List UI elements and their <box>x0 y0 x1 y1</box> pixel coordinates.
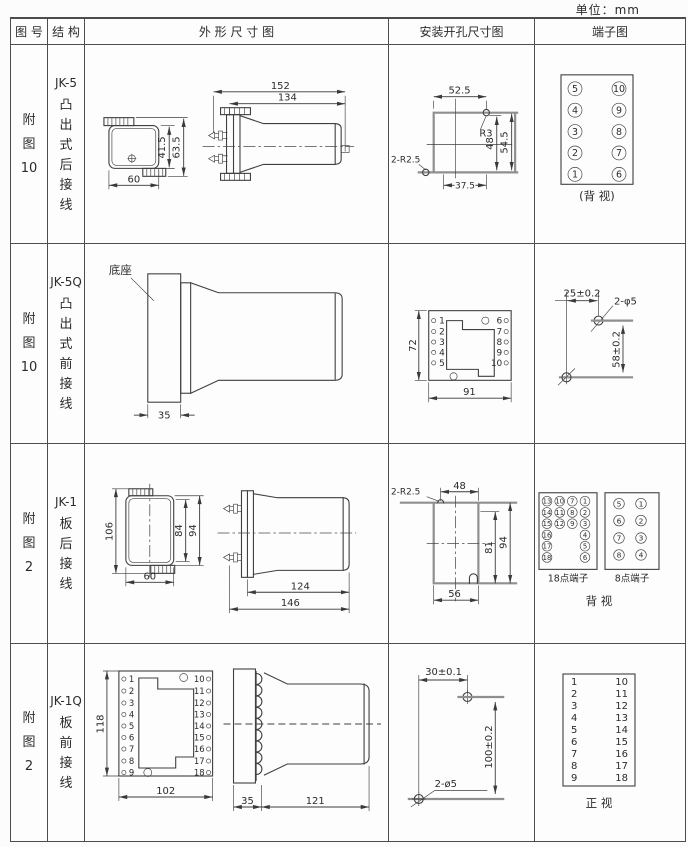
model-name: JK-1 <box>55 496 77 508</box>
dim-label: 56 <box>448 589 461 600</box>
pin-number: 16 <box>194 744 205 754</box>
pin-number: 7 <box>497 328 503 338</box>
dim-label: 146 <box>281 598 300 609</box>
jk5q-outline-drawing: 底座 35 <box>85 244 388 443</box>
figure-no-cell: 附 图 2 <box>11 644 48 841</box>
terminal-number: 10 <box>615 677 628 688</box>
pin-number: 10 <box>491 359 503 369</box>
terminal-number: 7 <box>570 498 574 506</box>
figure-no: 附 图 2 <box>22 712 35 773</box>
hole-spec-label: 2-ø5 <box>435 779 457 790</box>
pin-number: 12 <box>194 698 205 708</box>
screw-hole-icon <box>180 674 188 682</box>
terminal-circles-18 <box>542 496 590 562</box>
dim-label: 94 <box>188 524 199 537</box>
terminal-number: 11 <box>555 509 564 517</box>
terminal-number: 2 <box>583 509 587 517</box>
dim-label: 94 <box>499 536 510 549</box>
terminal-number: 5 <box>572 84 578 95</box>
view-caption: 正 视 <box>586 796 613 810</box>
header-terminal: 端子图 <box>535 19 685 45</box>
screw-hole-icon <box>450 373 457 380</box>
outline-cell: 106 84 94 60 124 <box>85 444 389 644</box>
terminal-box-caption: 18点端子 <box>548 572 589 584</box>
terminal-number: 6 <box>571 737 577 748</box>
jk1-outline-drawing: 106 84 94 60 124 <box>85 444 388 643</box>
terminal-number: 4 <box>572 105 578 116</box>
outline-cell: 41.5 63.5 60 15 <box>85 45 389 244</box>
pin-number: 1 <box>439 317 445 327</box>
dim-label: 134 <box>278 93 297 104</box>
terminal-number: 3 <box>572 127 578 138</box>
terminal-box-8 <box>605 493 659 570</box>
pin-number: 8 <box>129 756 134 766</box>
pin-number: 4 <box>439 348 445 358</box>
dim-label: 100±0.2 <box>484 725 495 768</box>
jk1-terminal-diagram: 13 14 15 16 17 18 10 11 12 7 8 9 1 2 3 4… <box>535 444 685 643</box>
structure-label: JK-1Q 板前 接线 <box>50 695 82 790</box>
structure-cell: JK-5 凸出 式后 接线 <box>48 45 85 244</box>
jk5q-side-view <box>148 274 342 402</box>
pin-number: 8 <box>497 338 503 348</box>
terminal-number: 9 <box>571 773 577 784</box>
pin-number: 9 <box>129 767 134 777</box>
terminal-number: 8 <box>616 127 622 138</box>
dimension-table: 图 号 结 构 外 形 尺 寸 图 安装开孔尺寸图 端子图 附 图 10 JK-… <box>10 17 686 842</box>
structure-cell: JK-1Q 板前 接线 <box>48 644 85 841</box>
terminal-number: 5 <box>583 543 587 551</box>
dim-label: 60 <box>128 174 141 185</box>
terminal-number: 3 <box>583 520 587 528</box>
dim-label: 84 <box>174 524 185 537</box>
dim-label: 58±0.2 <box>611 331 622 368</box>
mounting-cell: 72 91 1 2 3 4 5 6 7 8 9 10 <box>389 244 535 444</box>
figure-no-cell: 附 图 10 <box>11 244 48 444</box>
figure-no-cell: 附 图 10 <box>11 45 48 244</box>
corner-notch <box>469 574 477 583</box>
dim-label: 152 <box>271 81 290 92</box>
pin-number: 3 <box>439 338 445 348</box>
mounting-cell: 2-R2.5 48 81 94 56 <box>389 444 535 644</box>
terminal-stud-icon <box>224 553 242 562</box>
dim-label: 102 <box>156 786 175 797</box>
figure-no: 附 图 2 <box>22 513 35 574</box>
header-fig-no: 图 号 <box>11 19 48 45</box>
pin-number: 5 <box>129 721 134 731</box>
dim-label: 48 <box>485 137 496 150</box>
dim-label: 48 <box>453 481 466 492</box>
dim-label: 41.5 <box>157 136 168 158</box>
terminal-number: 7 <box>617 534 622 543</box>
jk1-front-view <box>126 484 175 580</box>
dim-label: 124 <box>291 581 310 592</box>
dim-label: 72 <box>408 339 419 352</box>
structure-label: JK-1 板后 接线 <box>55 496 77 591</box>
jk1q-side-view <box>224 669 381 783</box>
terminal-number: 9 <box>616 105 622 116</box>
terminal-number: 1 <box>583 498 587 506</box>
outline-cell: 1 2 3 4 5 6 7 8 9 10 11 12 13 14 15 16 1… <box>85 644 389 841</box>
pin-number: 2 <box>439 328 445 338</box>
model-name: JK-1Q <box>50 695 82 707</box>
figure-no: 附 图 10 <box>21 114 38 175</box>
pin-number: 17 <box>194 756 205 766</box>
base-label: 底座 <box>109 263 132 277</box>
dim-label: 30±0.1 <box>425 667 462 678</box>
pin-number: 10 <box>194 674 205 684</box>
terminal-number: 13 <box>543 498 552 506</box>
pin-number: 5 <box>439 359 445 369</box>
terminal-number: 18 <box>615 773 628 784</box>
terminal-number: 9 <box>570 520 574 528</box>
jk5-terminal-diagram: 5 4 3 2 1 10 9 8 7 6 (背 视) <box>535 45 685 243</box>
jk1q-outline-drawing: 1 2 3 4 5 6 7 8 9 10 11 12 13 14 15 16 1… <box>85 644 388 841</box>
terminal-number: 8 <box>570 509 574 517</box>
dim-label: 35 <box>241 796 254 807</box>
structure-cell: JK-5Q 凸出 式前 接线 <box>48 244 85 444</box>
dim-label: 54.5 <box>500 131 511 153</box>
terminal-number: 2 <box>571 689 577 700</box>
terminal-number: 14 <box>543 509 552 517</box>
pin-number: 14 <box>194 721 205 731</box>
dim-label: 60 <box>143 571 156 582</box>
jk1q-terminal-diagram: 1 2 3 4 5 6 7 8 9 10 11 12 13 14 15 16 1… <box>535 644 685 841</box>
terminal-cell: 13 14 15 16 17 18 10 11 12 7 8 9 1 2 3 4… <box>535 444 685 644</box>
terminal-number: 18 <box>543 554 552 562</box>
mounting-cell: 30±0.1 100±0.2 2-ø5 <box>389 644 535 841</box>
terminal-stud-icon <box>224 504 242 513</box>
terminal-number: 8 <box>571 761 577 772</box>
terminal-box-caption: 8点端子 <box>615 572 650 584</box>
screw-hole-icon <box>482 317 489 324</box>
terminal-number: 15 <box>615 737 628 748</box>
view-caption: 背 视 <box>586 594 613 608</box>
terminal-number: 4 <box>571 713 577 724</box>
jk5q-mounting-drawing: 72 91 1 2 3 4 5 6 7 8 9 10 <box>389 244 534 443</box>
pin-number: 9 <box>497 348 503 358</box>
figure-no: 附 图 10 <box>21 313 38 374</box>
dim-label: 106 <box>104 522 115 541</box>
pin-number: 13 <box>194 709 205 719</box>
mounting-cell: 52.5 R3 48 54.5 37.5 2-R2.5 <box>389 45 535 244</box>
dim-label: 37.5 <box>455 182 475 192</box>
terminal-number: 2 <box>639 516 644 525</box>
cutout-outline <box>139 678 194 768</box>
jk5-mounting-drawing: 52.5 R3 48 54.5 37.5 2-R2.5 <box>389 45 534 243</box>
structure-label: JK-5 凸出 式后 接线 <box>55 77 77 212</box>
pin-number: 1 <box>129 674 134 684</box>
dim-label: 118 <box>95 714 106 733</box>
terminal-number: 6 <box>617 516 622 525</box>
terminal-number: 17 <box>543 543 552 551</box>
terminal-number: 6 <box>616 170 622 181</box>
hole-spec-label: 2-φ5 <box>614 297 637 308</box>
screw-hole-icon <box>144 769 152 777</box>
jk1-mounting-drawing: 2-R2.5 48 81 94 56 <box>389 444 534 643</box>
terminal-number: 7 <box>616 148 622 159</box>
terminal-stud-icon <box>209 131 228 140</box>
pin-number: 11 <box>194 686 205 696</box>
dim-label: 63.5 <box>172 136 183 158</box>
terminal-number: 16 <box>543 531 552 539</box>
structure-cell: JK-1 板后 接线 <box>48 444 85 644</box>
model-name: JK-5Q <box>50 276 82 288</box>
terminal-cell: 1 2 3 4 5 6 7 8 9 10 11 12 13 14 15 16 1… <box>535 644 685 841</box>
terminal-cell: 5 4 3 2 1 10 9 8 7 6 (背 视) <box>535 45 685 244</box>
terminal-stud-icon <box>209 154 228 163</box>
terminal-number: 4 <box>639 551 644 560</box>
jk1q-mounting-drawing: 30±0.1 100±0.2 2-ø5 <box>389 644 534 841</box>
pin-number: 15 <box>194 732 205 742</box>
jk5q-drill-drawing: 25±0.2 2-φ5 58±0.2 <box>535 244 685 443</box>
model-name: JK-5 <box>55 77 77 89</box>
dim-label: 35 <box>158 411 171 422</box>
pin-number: 4 <box>129 709 134 719</box>
dim-label: 25±0.2 <box>564 289 601 300</box>
pin-number: 6 <box>497 317 503 327</box>
dim-label: 81 <box>484 541 495 554</box>
pin-number: 18 <box>194 767 205 777</box>
terminal-number: 11 <box>615 689 628 700</box>
radius-label: 2-R2.5 <box>391 488 420 498</box>
figure-no-cell: 附 图 2 <box>11 444 48 644</box>
terminal-number: 13 <box>615 713 628 724</box>
terminal-number: 7 <box>571 749 577 760</box>
pin-number: 2 <box>129 686 134 696</box>
spec-sheet-page: 单位：mm 图 号 结 构 外 形 尺 寸 图 安装开孔尺寸图 端子图 附 图 … <box>0 0 688 847</box>
terminal-number: 1 <box>571 677 577 688</box>
jk1-side-view <box>218 491 357 578</box>
terminal-number: 15 <box>543 520 552 528</box>
terminal-number: 1 <box>639 499 644 508</box>
jk5-side-view <box>203 92 355 181</box>
header-structure: 结 构 <box>48 19 85 45</box>
terminal-number: 10 <box>613 84 625 95</box>
terminal-number: 4 <box>583 531 587 539</box>
terminal-number: 5 <box>617 499 622 508</box>
jk5-outline-drawing: 41.5 63.5 60 15 <box>85 45 388 243</box>
unit-label: 单位：mm <box>576 1 640 18</box>
terminal-number: 3 <box>639 534 644 543</box>
terminal-number: 8 <box>617 551 622 560</box>
outline-cell: 底座 35 <box>85 244 389 444</box>
terminal-number: 10 <box>555 498 564 506</box>
terminal-cell: 25±0.2 2-φ5 58±0.2 <box>535 244 685 444</box>
structure-label: JK-5Q 凸出 式前 接线 <box>50 276 82 411</box>
terminal-number: 1 <box>572 170 578 181</box>
terminal-number: 14 <box>615 725 628 736</box>
pin-number: 3 <box>129 698 134 708</box>
header-outline: 外 形 尺 寸 图 <box>85 19 389 45</box>
dim-label: 91 <box>463 387 476 398</box>
terminal-number: 16 <box>615 749 628 760</box>
pin-number: 7 <box>129 744 134 754</box>
dim-label: 52.5 <box>448 86 470 97</box>
terminal-number: 12 <box>615 701 628 712</box>
terminal-number: 6 <box>583 554 587 562</box>
terminal-number: 12 <box>555 520 564 528</box>
radius-label: 2-R2.5 <box>391 155 420 165</box>
terminal-number: 17 <box>615 761 628 772</box>
cutout-outline <box>447 321 495 377</box>
view-caption: (背 视) <box>579 189 615 203</box>
terminal-number: 5 <box>571 725 577 736</box>
terminal-number: 2 <box>572 148 578 159</box>
dim-label: 121 <box>306 796 325 807</box>
terminal-number: 3 <box>571 701 577 712</box>
header-mounting: 安装开孔尺寸图 <box>389 19 535 45</box>
pin-number: 6 <box>129 732 134 742</box>
